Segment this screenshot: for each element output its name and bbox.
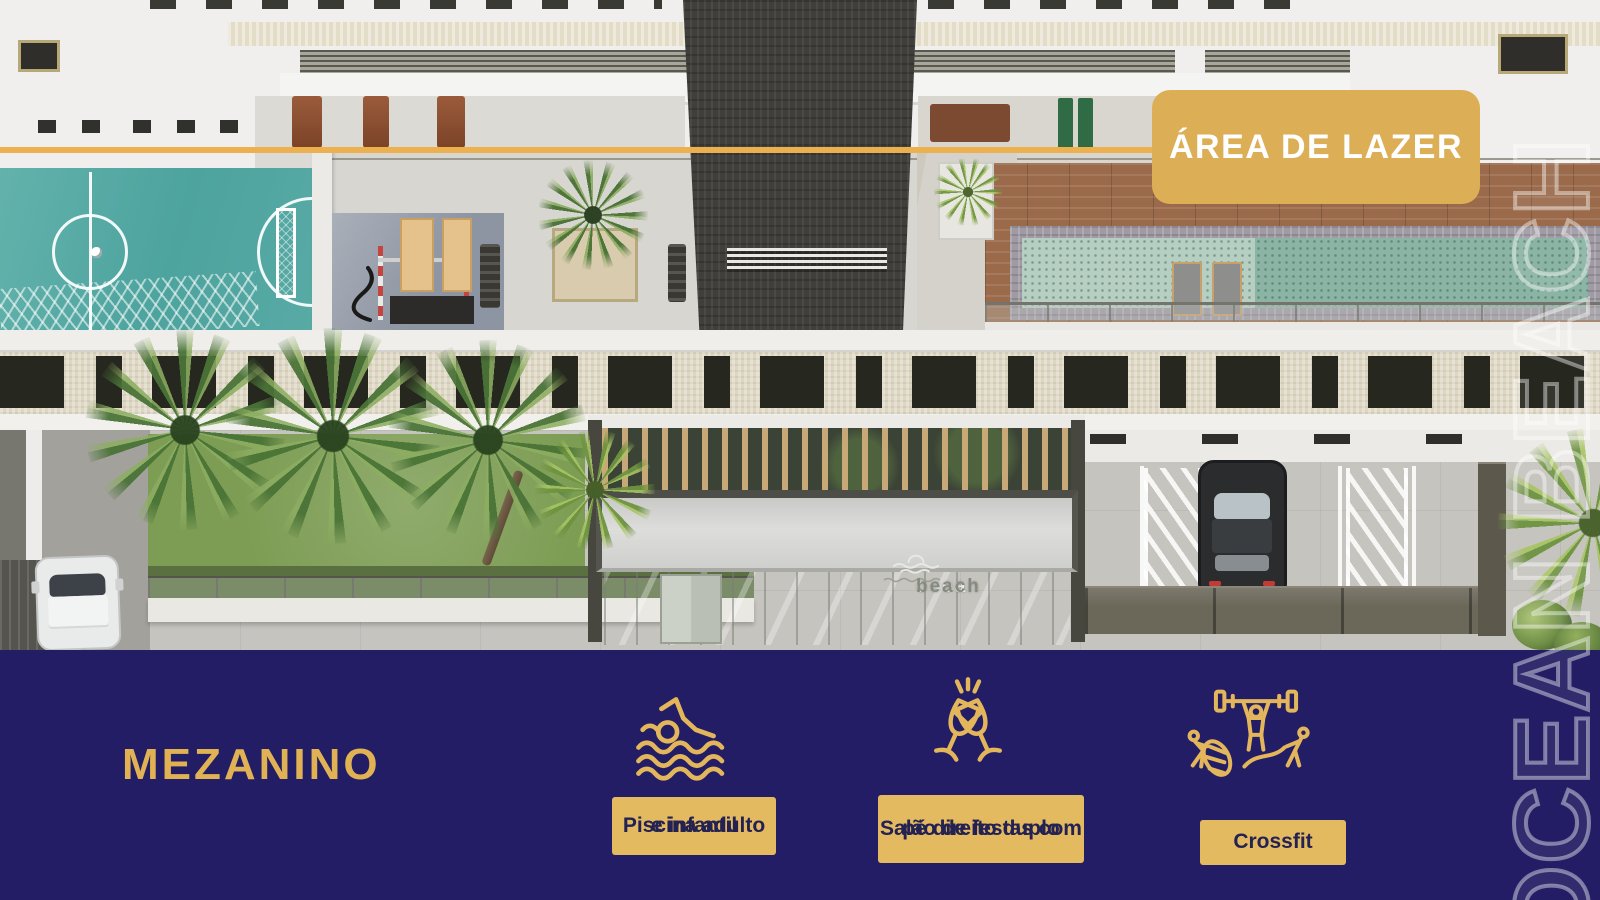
- amenity-label-crossfit: Crossfit: [1200, 820, 1346, 865]
- wave-logo-icon: [886, 552, 946, 576]
- balcony-louver: [1205, 50, 1350, 73]
- court-fence: [0, 271, 260, 335]
- area-de-lazer-badge: ÁREA DE LAZER: [1152, 90, 1480, 204]
- amenity-label-line: e infantil: [651, 813, 737, 839]
- facade-window: [1498, 34, 1568, 74]
- small-window: [38, 120, 56, 133]
- pergola-beam: [588, 415, 1085, 428]
- amenity-label-line: Crossfit: [1233, 829, 1312, 855]
- badge-label: ÁREA DE LAZER: [1169, 128, 1463, 167]
- pool-water-deep: [1255, 238, 1588, 308]
- palm-tree: [535, 430, 655, 550]
- small-window: [133, 120, 151, 133]
- amenity-label-line: pé direito duplo: [902, 816, 1060, 842]
- small-window: [82, 120, 100, 133]
- window-slits-row: [150, 0, 662, 9]
- facade-window: [18, 40, 60, 72]
- car-mirror: [115, 578, 123, 590]
- car-windshield: [1214, 493, 1270, 519]
- terrace-sofa: [363, 96, 389, 148]
- no-parking-hatch: [1346, 468, 1408, 600]
- small-window: [220, 120, 238, 133]
- amenity-label-pool: Piscina adulto e infantil: [612, 797, 776, 855]
- sign-word-beach: beach: [916, 576, 981, 598]
- court-center-circle: [52, 214, 128, 290]
- car-windshield: [49, 573, 106, 597]
- planter-plants: [934, 158, 1002, 226]
- bench: [480, 244, 500, 308]
- terrace-sofa: [292, 96, 322, 148]
- deck-wall: [312, 150, 332, 335]
- tree: [538, 160, 648, 270]
- building-sign: oceanbeach: [836, 552, 996, 612]
- bench: [668, 244, 686, 302]
- parking-line: [1338, 466, 1342, 600]
- glass-balustrade: [985, 302, 1600, 324]
- parked-car: [1198, 460, 1287, 600]
- swimmer-icon: [630, 688, 745, 784]
- car-roof: [1212, 519, 1272, 553]
- dining-table: [930, 104, 1010, 142]
- entrance-door: [660, 574, 722, 644]
- amenity-label-party-hall: Salão de festas com pé direito duplo: [878, 795, 1084, 863]
- marketing-render-page: oceanbeach ÁREA DE L: [0, 0, 1600, 900]
- pergola-slats: [602, 428, 1071, 490]
- boundary-fence: [1085, 586, 1492, 634]
- terrace-chair: [1058, 98, 1073, 152]
- goal-net: [276, 208, 296, 298]
- gold-divider-line: [0, 147, 1158, 153]
- no-parking-hatch: [1144, 468, 1202, 600]
- car-rear-window: [1215, 555, 1269, 571]
- car-mirror: [31, 581, 39, 593]
- section-title: MEZANINO: [122, 740, 381, 790]
- small-window: [177, 120, 195, 133]
- battle-rope: [330, 265, 380, 325]
- terrace-sofa: [437, 96, 465, 148]
- crossfit-icon: [1176, 680, 1336, 796]
- window-slits-row: [928, 0, 1308, 9]
- basement-vents: [1090, 434, 1510, 444]
- sports-court: [0, 168, 312, 335]
- dark-tower-facade: [683, 0, 917, 332]
- white-car: [34, 555, 121, 652]
- soccer-ball: [91, 247, 102, 258]
- car-roof: [48, 595, 109, 627]
- plyo-box: [400, 218, 434, 292]
- gym-mat: [390, 296, 474, 324]
- plyo-box: [442, 218, 472, 292]
- terrace-chair: [1078, 98, 1093, 152]
- parking-line: [1412, 466, 1416, 600]
- toasting-glasses-icon: [908, 676, 1028, 786]
- tower-railing: [727, 248, 887, 272]
- balcony-louver: [300, 50, 745, 73]
